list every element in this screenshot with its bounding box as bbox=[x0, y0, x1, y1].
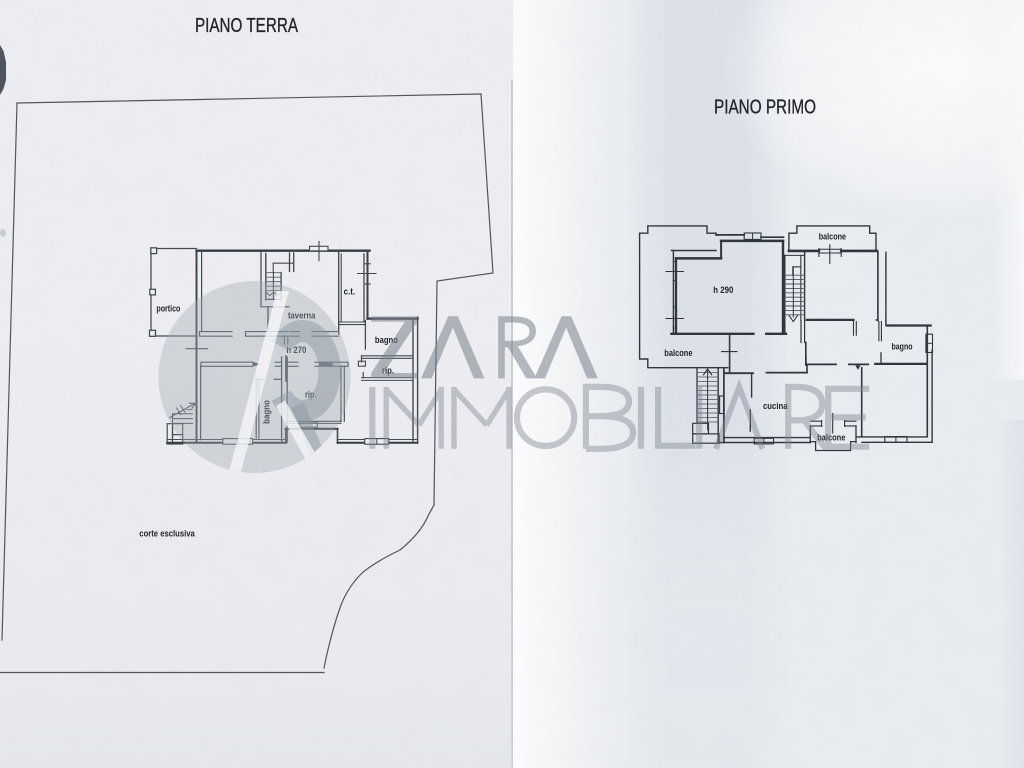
svg-text:PIANO TERRA: PIANO TERRA bbox=[195, 14, 298, 37]
svg-text:cucina: cucina bbox=[763, 400, 788, 411]
svg-text:portico: portico bbox=[156, 302, 180, 313]
svg-text:balcone: balcone bbox=[819, 230, 846, 241]
svg-text:c.t.: c.t. bbox=[344, 285, 356, 296]
svg-text:h 290: h 290 bbox=[713, 284, 733, 295]
svg-text:corte esclusiva: corte esclusiva bbox=[139, 527, 195, 538]
svg-text:PIANO PRIMO: PIANO PRIMO bbox=[714, 95, 816, 118]
svg-text:bagno: bagno bbox=[892, 340, 913, 351]
svg-text:balcone: balcone bbox=[664, 347, 692, 358]
